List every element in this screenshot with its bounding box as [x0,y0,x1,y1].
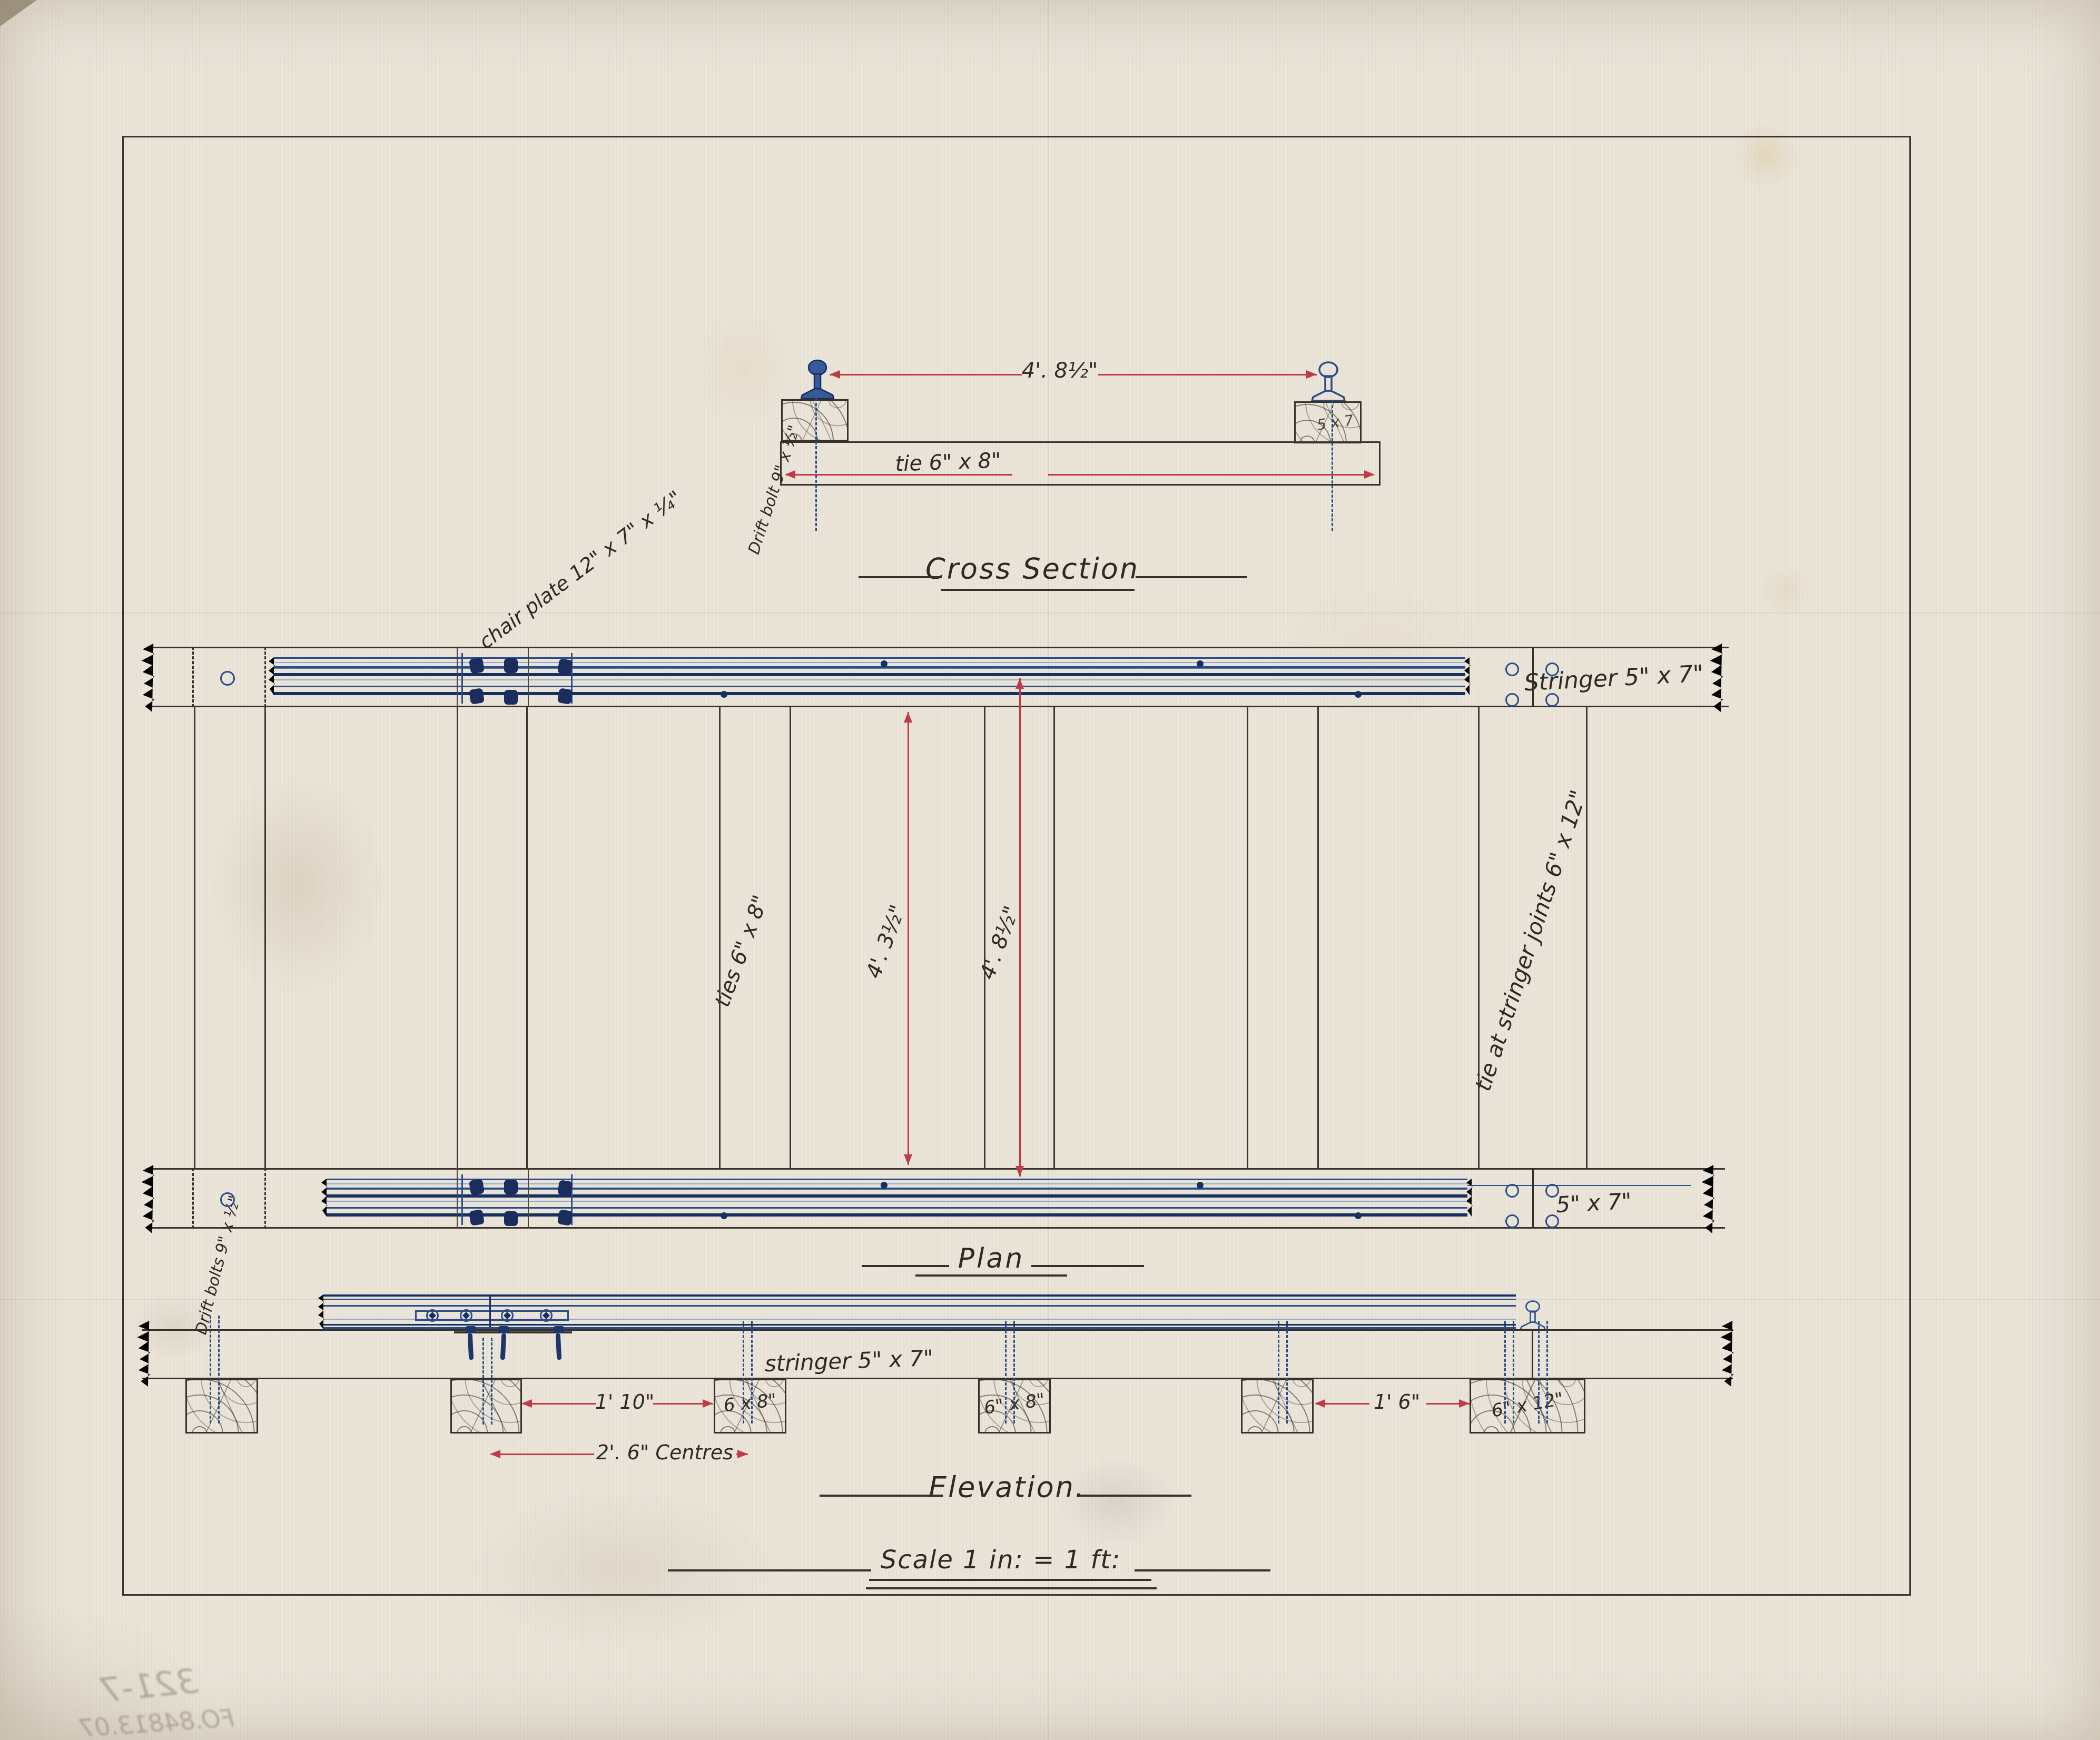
rail-end-icon [1464,1179,1475,1217]
dim-gap-label: 1' 10" [595,1390,655,1413]
title-dash [862,1265,949,1267]
plan-tie [1478,707,1588,1168]
bolt-head [557,688,573,705]
drift-bolt-dashed [482,1338,484,1425]
drift-bolt-dashed [218,1316,220,1423]
title-underline [941,589,1135,591]
bolt-hole [1505,663,1519,676]
hook-bolt-head [554,1326,564,1333]
bolt-head [469,688,485,705]
rail-joint-line [489,1297,491,1327]
title-dash [1079,1495,1191,1497]
break-line-icon [1708,644,1726,712]
drift-bolt-dashed [1013,1321,1015,1423]
arrowhead-icon [1016,678,1024,689]
gauge-dim-line [830,374,1022,375]
bolt-head [504,658,518,673]
tie-block [1241,1379,1314,1433]
bolt-hole [1545,693,1559,707]
drift-bolt-dashed [815,398,817,531]
stringer-joint-line [1532,647,1534,707]
elevation-title: Elevation. [929,1471,1086,1504]
tie-length-dim-line [1048,474,1374,476]
title-dash [1135,1569,1270,1571]
drawing-sheet: 4'. 8½" 5 x 7 tie 6" x 8" Drift bolt 9" … [0,0,2100,1740]
gauge-line [1467,1185,1691,1186]
stringer-joint-line [1532,1329,1533,1379]
arrowhead-icon [830,370,840,379]
tie-length-dim-line [786,474,1012,476]
bolt-head [469,657,485,674]
arrowhead-icon [904,1154,912,1165]
splice-bolt [540,1309,553,1322]
bolt-head [469,1209,485,1226]
bolt-head [504,690,518,705]
rail-end-icon [316,1294,327,1329]
tie-size-label: tie 6" x 8" [895,449,1001,477]
title-dash [1136,576,1247,578]
scale-label: Scale 1 in: = 1 ft: [881,1545,1121,1575]
title-underline [869,1579,1151,1581]
arrowhead-icon [1315,1399,1325,1408]
gauge-dim-line [1098,374,1317,375]
tie-hidden-edge [192,1168,194,1229]
arrowhead-icon [490,1450,500,1458]
tie-hidden-edge [264,647,266,707]
drift-bolt-dashed [1332,400,1333,531]
tie-block [714,1379,786,1433]
bolt-hole [1545,1184,1559,1198]
title-dash [859,576,939,578]
tie-edge-line [528,647,529,707]
rail-spike-dot [1355,1212,1362,1219]
rail-spike-dot [721,1212,727,1219]
right-rail-section-icon [1310,361,1347,402]
bolt-head [469,1179,485,1195]
left-rail-section-icon [799,359,836,400]
bolt-hole [1505,1184,1519,1198]
title-underline [866,1587,1157,1589]
drift-bolt-dashed [751,1321,753,1423]
bolt-hole [220,671,235,686]
dim-line [491,1454,594,1455]
title-underline [915,1274,1067,1277]
chair-plate-edge [461,653,463,704]
rail-spike-dot [1197,1182,1204,1189]
dim-joint-label: 1' 6" [1374,1390,1420,1413]
drift-bolt-dashed [1278,1321,1279,1423]
arrowhead-icon [904,712,912,723]
tie-edge-line [457,1168,458,1229]
plan-tie [984,707,1055,1168]
break-line-icon [135,1321,153,1387]
dim-line [522,1403,596,1405]
bolt-head [504,1211,518,1226]
cross-section-title: Cross Section [925,552,1139,586]
tie-edge-line [528,1168,529,1229]
plan-title: Plan [958,1243,1025,1274]
dim-centres-label: 2'. 6" Centres [596,1441,733,1464]
drift-bolt-dashed [1005,1321,1007,1423]
rail-end-icon [267,657,277,695]
arrowhead-icon [1459,1399,1470,1408]
paper-corner-fold [0,0,37,26]
break-line-icon [139,1165,157,1233]
arrowhead-icon [703,1399,713,1408]
dim-inner-line [908,712,909,1165]
stringer-joint-line [1532,1168,1534,1229]
title-dash [1031,1265,1144,1267]
rail-spike-dot [1355,691,1362,698]
title-dash [820,1495,942,1497]
title-dash [668,1569,871,1571]
arrowhead-icon [737,1450,748,1458]
rail-spike-dot [721,691,727,698]
rail-spike-dot [1197,660,1204,667]
splice-bolt [426,1309,439,1322]
rail-plan-bottom [327,1179,1467,1217]
arrowhead-icon [1364,470,1375,479]
plan-tie [194,707,266,1168]
bolt-head [557,658,573,675]
rail-spike-dot [881,1182,888,1189]
drift-bolt-dashed [491,1338,492,1425]
tie-block [450,1379,522,1433]
drift-bolt-dashed [1504,1321,1506,1423]
bolt-head [504,1180,518,1194]
stringer-top-edge [142,1329,1733,1331]
plan-tie [1247,707,1319,1168]
gauge-dimension: 4'. 8½" [1022,359,1098,383]
plan-tie [457,707,528,1168]
bolt-hole [1545,663,1559,676]
break-line-icon [1699,1165,1717,1233]
bolt-hole [220,1192,235,1207]
bolt-head [557,1180,573,1197]
splice-bolt [460,1309,472,1322]
rail-end-icon [1462,657,1473,695]
ghost-stamp: 321-7 [98,1662,200,1711]
arrowhead-icon [521,1399,532,1408]
plan-tie [719,707,791,1168]
drift-bolt-dashed [1286,1321,1288,1423]
stringer-label: 5" x 7" [1555,1188,1632,1218]
drift-bolt-dashed [1546,1321,1548,1423]
bolt-hole [1545,1214,1559,1228]
rail-end-icon [319,1179,330,1217]
drift-bolt-dashed [743,1321,744,1423]
tie-hidden-edge [264,1168,266,1229]
arrowhead-icon [1306,370,1317,379]
bolt-hole [1505,693,1519,707]
tie-cross-section [780,441,1381,486]
break-line-icon [1718,1321,1736,1387]
rail-spike-dot [881,660,888,667]
hook-bolt-head [466,1326,476,1333]
tie-hidden-edge [192,647,194,707]
hook-bolt-head [498,1326,509,1333]
bolt-hole [1505,1214,1519,1228]
drift-bolt-dashed [210,1316,211,1423]
tie-edge-line [457,647,458,707]
splice-bolt [501,1309,514,1322]
chair-plate-edge [461,1174,463,1225]
drift-bolt-dashed [1538,1321,1540,1423]
rail-plan-top [274,657,1465,695]
drift-bolt-dashed [1513,1321,1514,1423]
break-line-icon [139,644,157,712]
tie-block [185,1379,258,1433]
tie-block [1470,1379,1585,1433]
bolt-head [557,1209,573,1226]
